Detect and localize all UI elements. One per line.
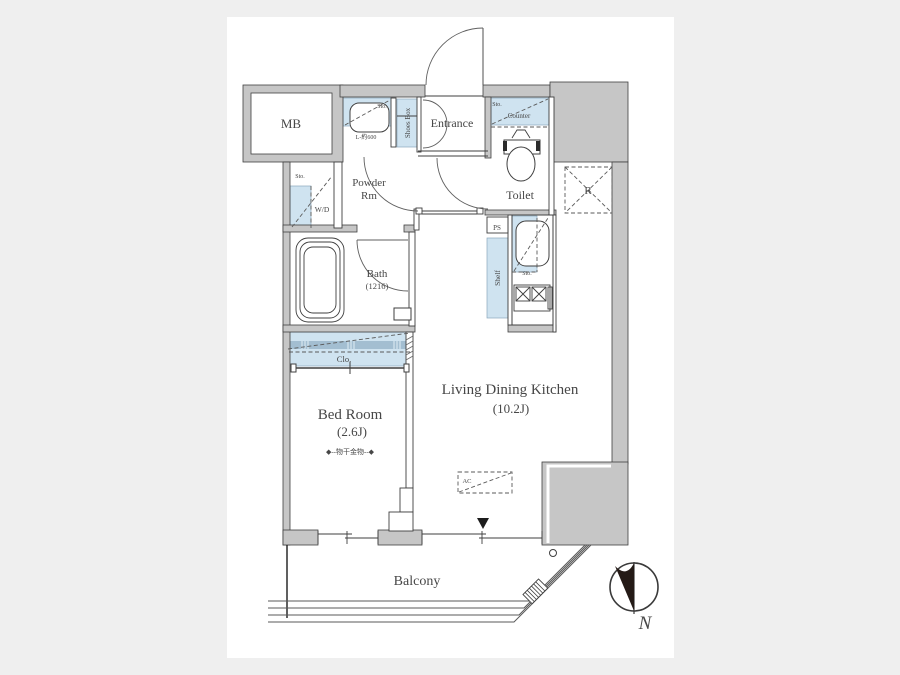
closet-label: Clo.	[337, 354, 351, 364]
ldk-label: Living Dining Kitchen	[442, 382, 579, 398]
bedroom-partition	[406, 332, 413, 488]
west-wall	[283, 162, 290, 545]
pipe-space-label: PS	[493, 224, 501, 232]
powder-room-label-1: Powder	[352, 177, 386, 189]
entrance-label: Entrance	[431, 116, 474, 130]
bath-counter	[394, 308, 411, 320]
washer-storage-area	[290, 186, 311, 228]
kitchen-sink	[516, 221, 549, 266]
bath-label: Bath	[367, 268, 388, 280]
storage-label-toilet: Sto.	[492, 102, 502, 108]
closet-stripe	[289, 341, 410, 349]
north-label: N	[638, 613, 653, 634]
toilet-label: Toilet	[506, 188, 534, 202]
floorplan-page: MB Entrance Shoes Box Sto. L-約600 Sto. C…	[0, 0, 900, 675]
ac-label: AC	[462, 478, 471, 485]
shoes-box-label: Shoes Box	[404, 107, 412, 138]
structure-block-bottom-right	[542, 462, 628, 545]
laundry-fixture-label: ◆--物干金物--◆	[326, 447, 375, 456]
bath-size-label: (1216)	[366, 281, 389, 291]
mb-label: MB	[281, 116, 302, 131]
bedroom-size-label: (2.6J)	[337, 424, 367, 439]
counter-label: Counter	[508, 112, 531, 120]
shelf-label: Shelf	[493, 270, 502, 286]
east-wall	[612, 162, 628, 464]
ldk-size-label: (10.2J)	[493, 401, 529, 416]
storage-label-kitchen: Sto.	[522, 271, 532, 277]
balcony-label: Balcony	[394, 574, 441, 589]
floorplan-drawing: MB Entrance Shoes Box Sto. L-約600 Sto. C…	[0, 0, 900, 675]
balcony-drain	[550, 550, 557, 557]
refrigerator-label: R	[584, 185, 592, 197]
storage-label-wd: Sto.	[295, 174, 305, 180]
washer-dryer-label: W/D	[315, 205, 330, 214]
powder-room-label-2: Rm	[361, 190, 377, 202]
structure-block-top-right	[550, 82, 628, 162]
storage-label-basin: Sto.	[377, 104, 387, 110]
basin-width-label: L-約600	[356, 133, 377, 141]
bedroom-label: Bed Room	[318, 407, 383, 423]
